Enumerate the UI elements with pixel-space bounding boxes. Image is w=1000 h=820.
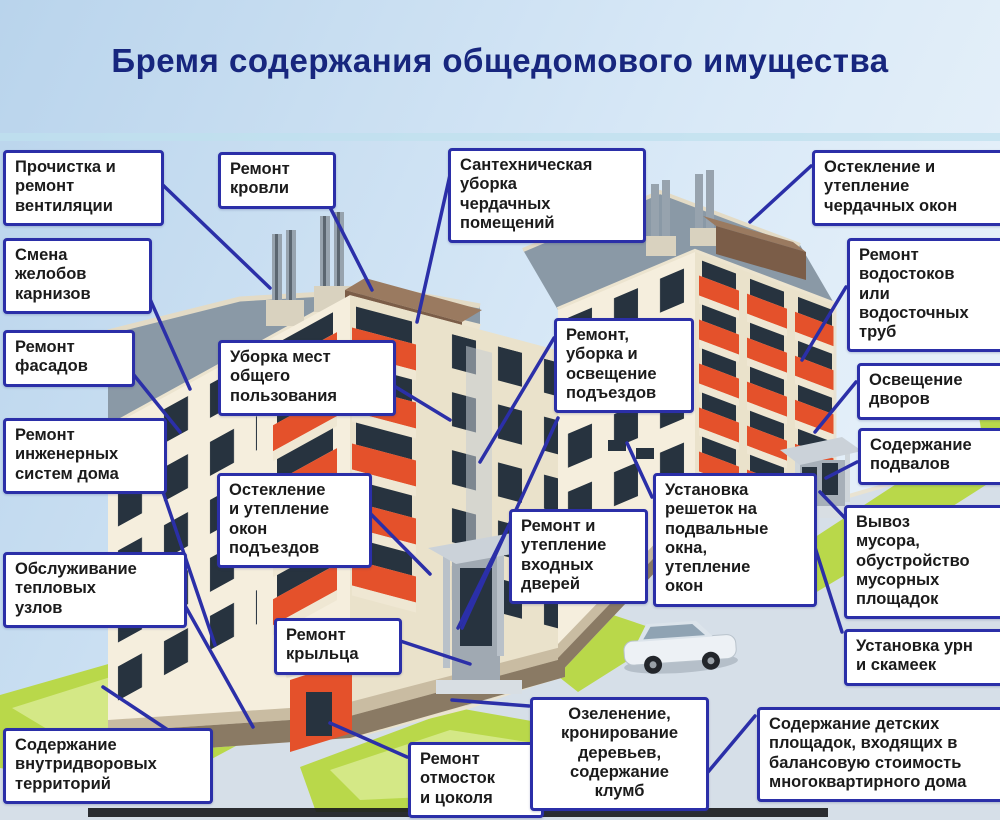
callout-vent-cleaning: Прочистка и ремонт вентиляции [3, 150, 164, 226]
page-title: Бремя содержания общедомового имущества [0, 42, 1000, 80]
callout-blind-area-repair: Ремонт отмосток и цоколя [408, 742, 544, 818]
callout-basement-window-grilles: Установка решеток на подвальные окна, ут… [653, 473, 817, 607]
callout-urns-benches-installation: Установка урн и скамеек [844, 629, 1000, 686]
infographic-page: Бремя содержания общедомового имущества [0, 0, 1000, 820]
callout-yard-territory-maintenance: Содержание внутридворовых территорий [3, 728, 213, 804]
callout-roof-repair: Ремонт кровли [218, 152, 336, 209]
callout-facade-repair: Ремонт фасадов [3, 330, 135, 387]
callout-attic-sanitary-cleaning: Сантехническая уборка чердачных помещени… [448, 148, 646, 243]
leader-line-attic-window-glazing [750, 166, 811, 222]
callout-gutter-replacement: Смена желобов карнизов [3, 238, 152, 314]
callout-porch-repair: Ремонт крыльца [274, 618, 402, 675]
callout-playground-maintenance: Содержание детских площадок, входящих в … [757, 707, 1000, 802]
callout-heat-unit-service: Обслуживание тепловых узлов [3, 552, 187, 628]
callout-attic-window-glazing: Остекление и утепление чердачных окон [812, 150, 1000, 226]
callout-entrance-window-glazing: Остекление и утепление окон подъездов [217, 473, 372, 568]
callout-garbage-removal: Вывоз мусора, обустройство мусорных площ… [844, 505, 1000, 619]
callout-entrance-maintenance: Ремонт, уборка и освещение подъездов [554, 318, 694, 413]
callout-greenery-maintenance: Озеленение, кронирование деревьев, содер… [530, 697, 709, 811]
callout-drainpipe-repair: Ремонт водостоков или водосточных труб [847, 238, 1000, 352]
callout-engineering-systems-repair: Ремонт инженерных систем дома [3, 418, 167, 494]
callout-common-area-cleaning: Уборка мест общего пользования [218, 340, 396, 416]
callout-basement-maintenance: Содержание подвалов [858, 428, 1000, 485]
basement-window [636, 448, 654, 459]
callout-yard-lighting: Освещение дворов [857, 363, 1000, 420]
basement-window [608, 440, 626, 451]
callout-entrance-door-repair: Ремонт и утепление входных дверей [509, 509, 648, 604]
